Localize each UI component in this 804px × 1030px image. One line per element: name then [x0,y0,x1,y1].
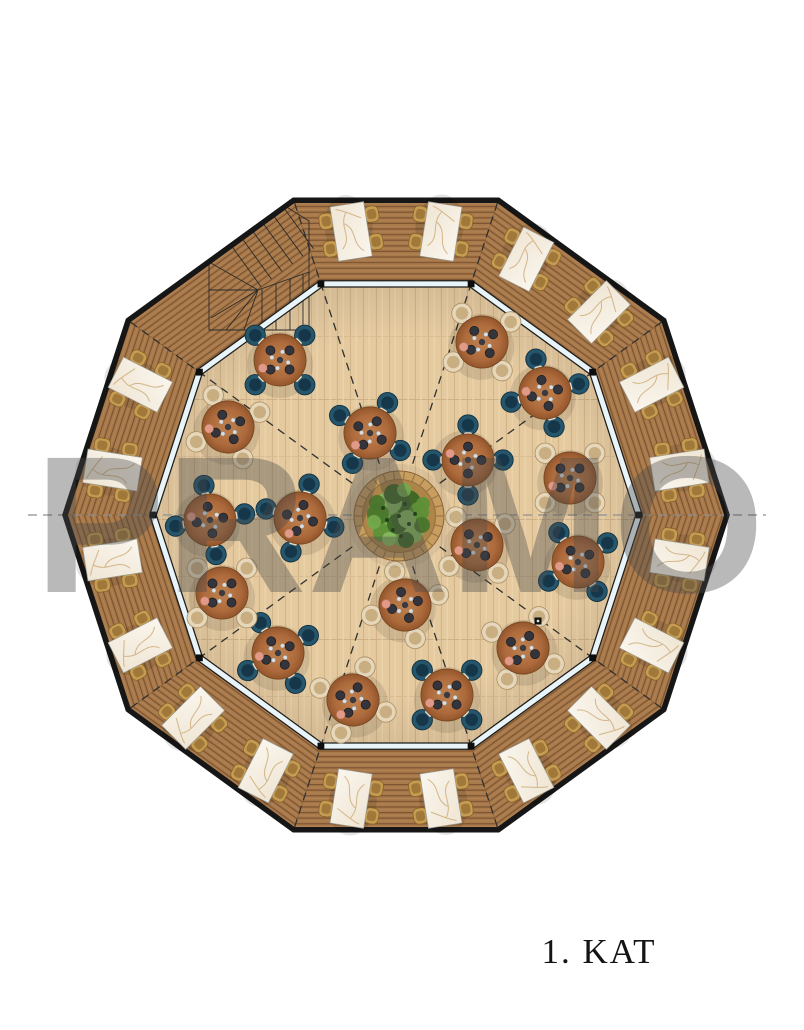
plate [452,700,461,709]
floor-plan-page: PRAMO 1. KAT [0,0,804,1030]
dining-chair-seat [249,329,262,342]
dining-chair-seat [249,378,262,391]
plate [266,365,275,374]
glassware [275,366,279,370]
floor-label: 1. KAT [541,932,656,971]
dining-chair-seat [465,664,478,677]
glass-corner-post [468,280,475,287]
dining-chair-seat [298,378,311,391]
plate [452,681,461,690]
centerpiece [277,357,283,363]
glassware [442,701,446,705]
pink-dish [425,699,434,708]
glassware [286,360,290,364]
plate [433,681,442,690]
dining-chair-seat [298,329,311,342]
plate [266,346,275,355]
deck-segment [294,200,499,284]
centerpiece [444,692,450,698]
pink-dish [258,364,267,373]
glass-corner-post [318,743,325,750]
glassware [453,695,457,699]
glassware [447,685,451,689]
dining-chair-seat [416,664,429,677]
plate [285,365,294,374]
glass-corner-post [589,369,596,376]
dining-table-navy [412,660,482,733]
glass-corner-post [196,369,203,376]
dining-chair-seat [465,713,478,726]
plate [285,346,294,355]
glass-corner-post [468,743,475,750]
glassware [270,355,274,359]
deck-segment [294,746,499,830]
glass-corner-post [589,654,596,661]
glass-corner-post [196,654,203,661]
dining-chair-seat [416,713,429,726]
watermark-text: PRAMO [35,416,766,634]
plate [433,700,442,709]
glassware [280,350,284,354]
dining-table-navy [245,325,315,398]
floor-plan-canvas: PRAMO 1. KAT [0,0,804,1030]
glass-corner-post [318,280,325,287]
glassware [437,690,441,694]
